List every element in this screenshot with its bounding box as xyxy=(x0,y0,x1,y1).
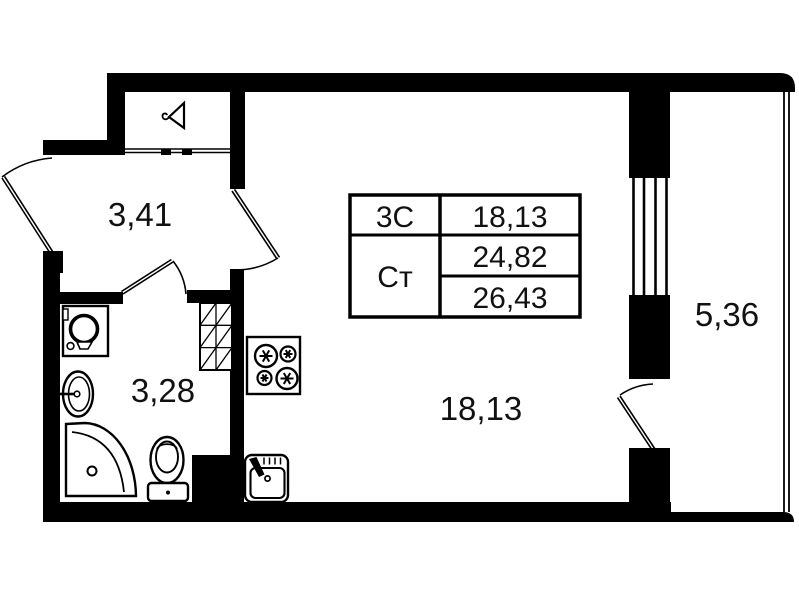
balcony-bottom-wall xyxy=(660,512,794,522)
bathroom-top-left-wall xyxy=(57,292,123,304)
info-table: 3С 18,13 Ст 24,82 26,43 xyxy=(350,195,580,317)
table-row1-label: 3С xyxy=(376,201,414,234)
room-label-hallway: 3,41 xyxy=(108,196,172,233)
balcony-railing xyxy=(784,92,789,512)
living-room-door xyxy=(232,189,280,270)
stove-icon xyxy=(247,337,300,394)
washbasin-icon xyxy=(60,372,93,417)
shower-tray-icon xyxy=(66,423,136,496)
toilet-icon xyxy=(148,437,188,501)
ventilation-shaft-hatch xyxy=(200,303,232,370)
right-wall-lower xyxy=(629,448,670,518)
window xyxy=(634,178,667,296)
hallway-upper-left-wall xyxy=(43,140,110,155)
bathroom-door xyxy=(121,260,186,295)
balcony-door xyxy=(618,384,656,451)
entrance-corner-block xyxy=(43,251,63,273)
table-row1-value: 18,13 xyxy=(472,201,547,234)
table-row2-value1: 24,82 xyxy=(472,241,547,274)
washing-machine-icon xyxy=(63,306,108,356)
hanger-icon xyxy=(162,103,184,128)
kitchen-sink-icon xyxy=(245,455,288,502)
entrance-door xyxy=(2,158,53,253)
right-wall-upper xyxy=(629,88,670,178)
bottom-wall xyxy=(43,502,671,522)
room-label-living: 18,13 xyxy=(440,390,523,427)
floor-plan: 3С 18,13 Ст 24,82 26,43 3,41 3,28 18,13 … xyxy=(0,0,799,600)
right-wall-middle xyxy=(629,295,670,379)
table-row2-value2: 26,43 xyxy=(472,282,547,315)
room-label-balcony: 5,36 xyxy=(695,296,759,333)
bathroom-left-wall xyxy=(43,251,60,522)
bathroom-corner-stub xyxy=(192,455,233,505)
niche-right-wall xyxy=(230,92,245,189)
wardrobe-niche xyxy=(125,103,230,155)
bathroom-top-right-wall xyxy=(187,290,233,303)
table-row2-label: Ст xyxy=(377,261,413,294)
room-label-bathroom: 3,28 xyxy=(131,372,195,409)
top-wall xyxy=(107,73,795,92)
